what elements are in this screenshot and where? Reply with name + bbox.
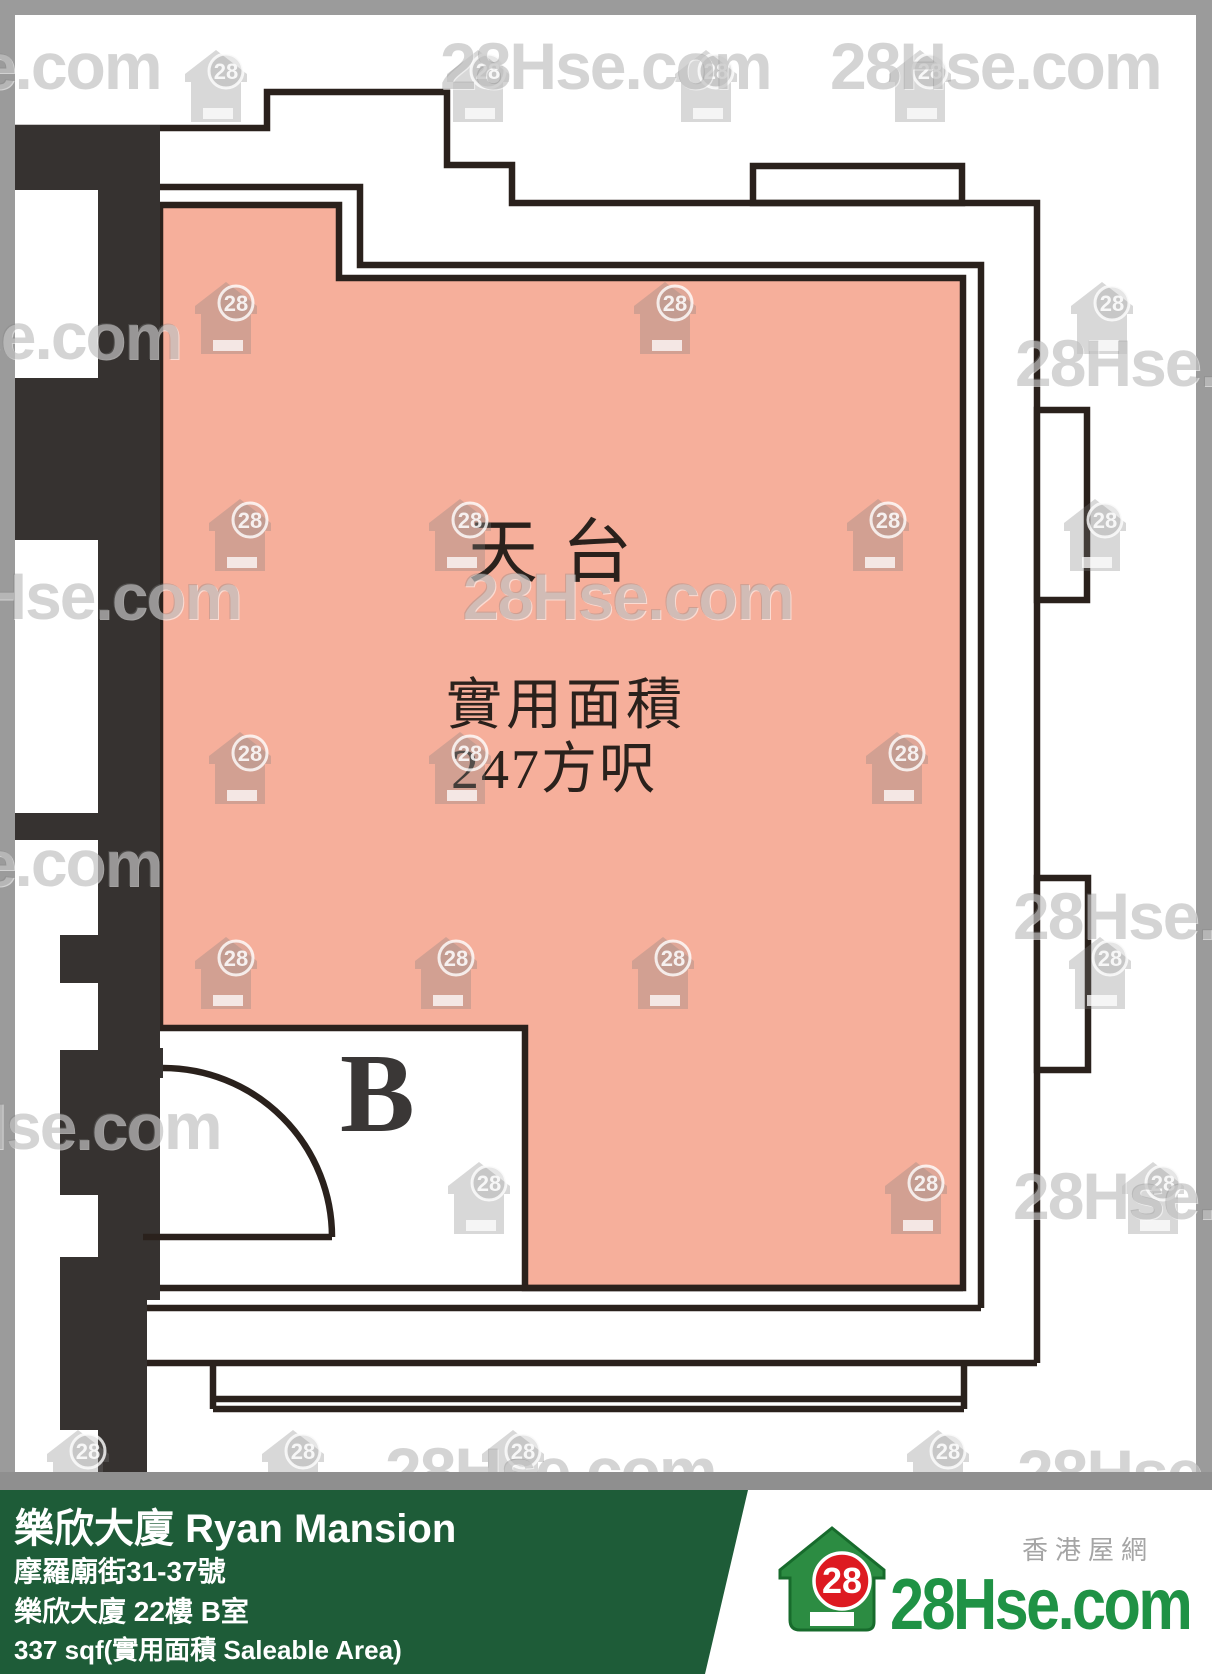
logo-badge-number: 28: [822, 1560, 862, 1601]
solid-wall-stub-b: [15, 813, 98, 840]
building-title: 樂欣大廈 Ryan Mansion: [14, 1496, 456, 1554]
rooftop-label: 天台: [468, 496, 656, 597]
saleable-area-footer: 337 sqf(實用面積 Saleable Area): [14, 1630, 402, 1667]
solid-wall-block-a: [15, 378, 98, 540]
solid-wall-block-c: [60, 935, 98, 983]
window-box-upper: [1037, 410, 1087, 600]
solid-wall-group: [15, 125, 163, 1473]
solid-wall-block-d: [60, 1050, 98, 1195]
floorplan-drawing: [0, 0, 1212, 1674]
unit-letter-label: B: [340, 1030, 415, 1159]
saleable-area-value: 247方呎: [451, 724, 657, 805]
logo-house-icon: 28: [776, 1524, 888, 1634]
site-logo: 28 28Hse.com 香港屋網: [776, 1524, 1196, 1654]
logo-site-name: 28Hse.com: [890, 1564, 1190, 1646]
solid-wall-top-bar: [15, 125, 160, 190]
door-hinge-nub: [137, 1048, 163, 1078]
solid-wall-block-e: [60, 1257, 98, 1430]
frame-top: [0, 0, 1212, 15]
floorplan-page: 天台 實用面積 247方呎 B 28 28 28 28 28: [0, 0, 1212, 1674]
solid-wall-column: [98, 187, 160, 1300]
frame-left: [0, 0, 15, 1473]
solid-wall-column-lower: [98, 1300, 147, 1473]
window-box-lower: [1037, 878, 1088, 1070]
logo-tagline: 香港屋網: [1022, 1530, 1154, 1567]
door-swing-arc: [163, 1068, 332, 1237]
frame-right: [1196, 0, 1212, 1473]
roof-bump-structure: [753, 166, 962, 203]
building-address: 摩羅廟街31-37號: [14, 1550, 226, 1590]
unit-description: 樂欣大廈 22樓 B室: [14, 1590, 249, 1630]
footer-divider: [0, 1472, 1212, 1490]
